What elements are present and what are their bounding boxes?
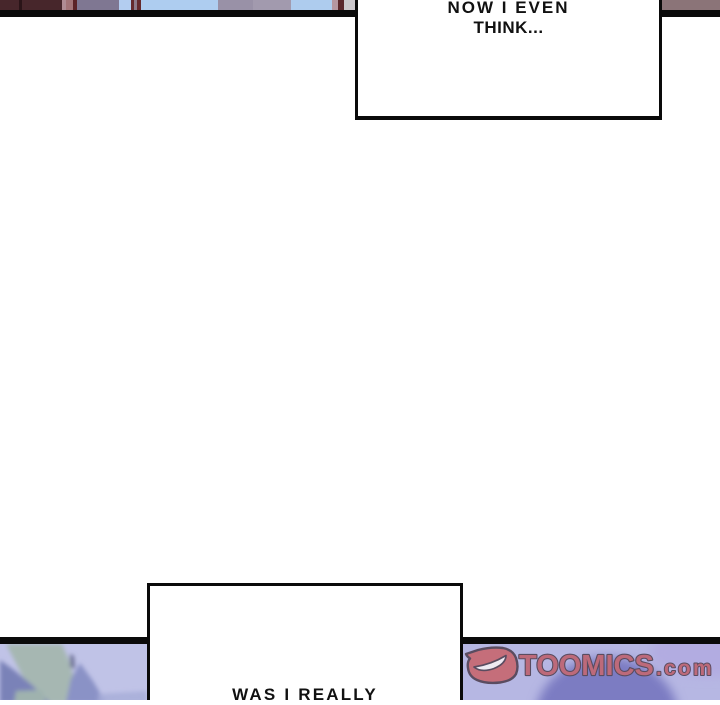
svg-text:.com: .com [656, 657, 714, 680]
svg-text:TOOMICS: TOOMICS [519, 650, 654, 682]
